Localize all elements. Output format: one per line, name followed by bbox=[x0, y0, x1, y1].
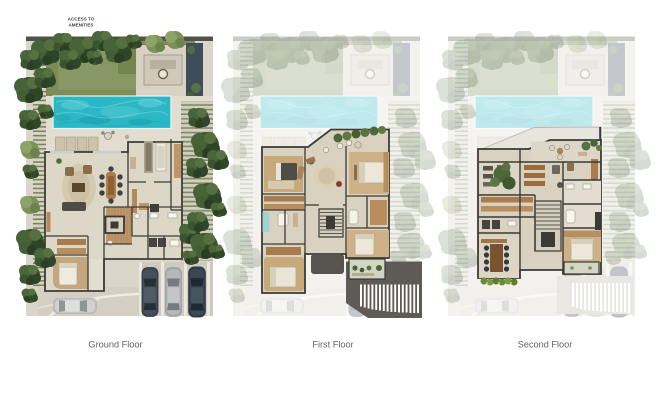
svg-text:ACCESS TO: ACCESS TO bbox=[68, 17, 95, 22]
svg-text:First Floor: First Floor bbox=[312, 340, 353, 350]
svg-text:Second Floor: Second Floor bbox=[518, 340, 573, 350]
svg-text:Ground Floor: Ground Floor bbox=[88, 340, 142, 350]
svg-text:AMENITIES: AMENITIES bbox=[68, 23, 93, 28]
